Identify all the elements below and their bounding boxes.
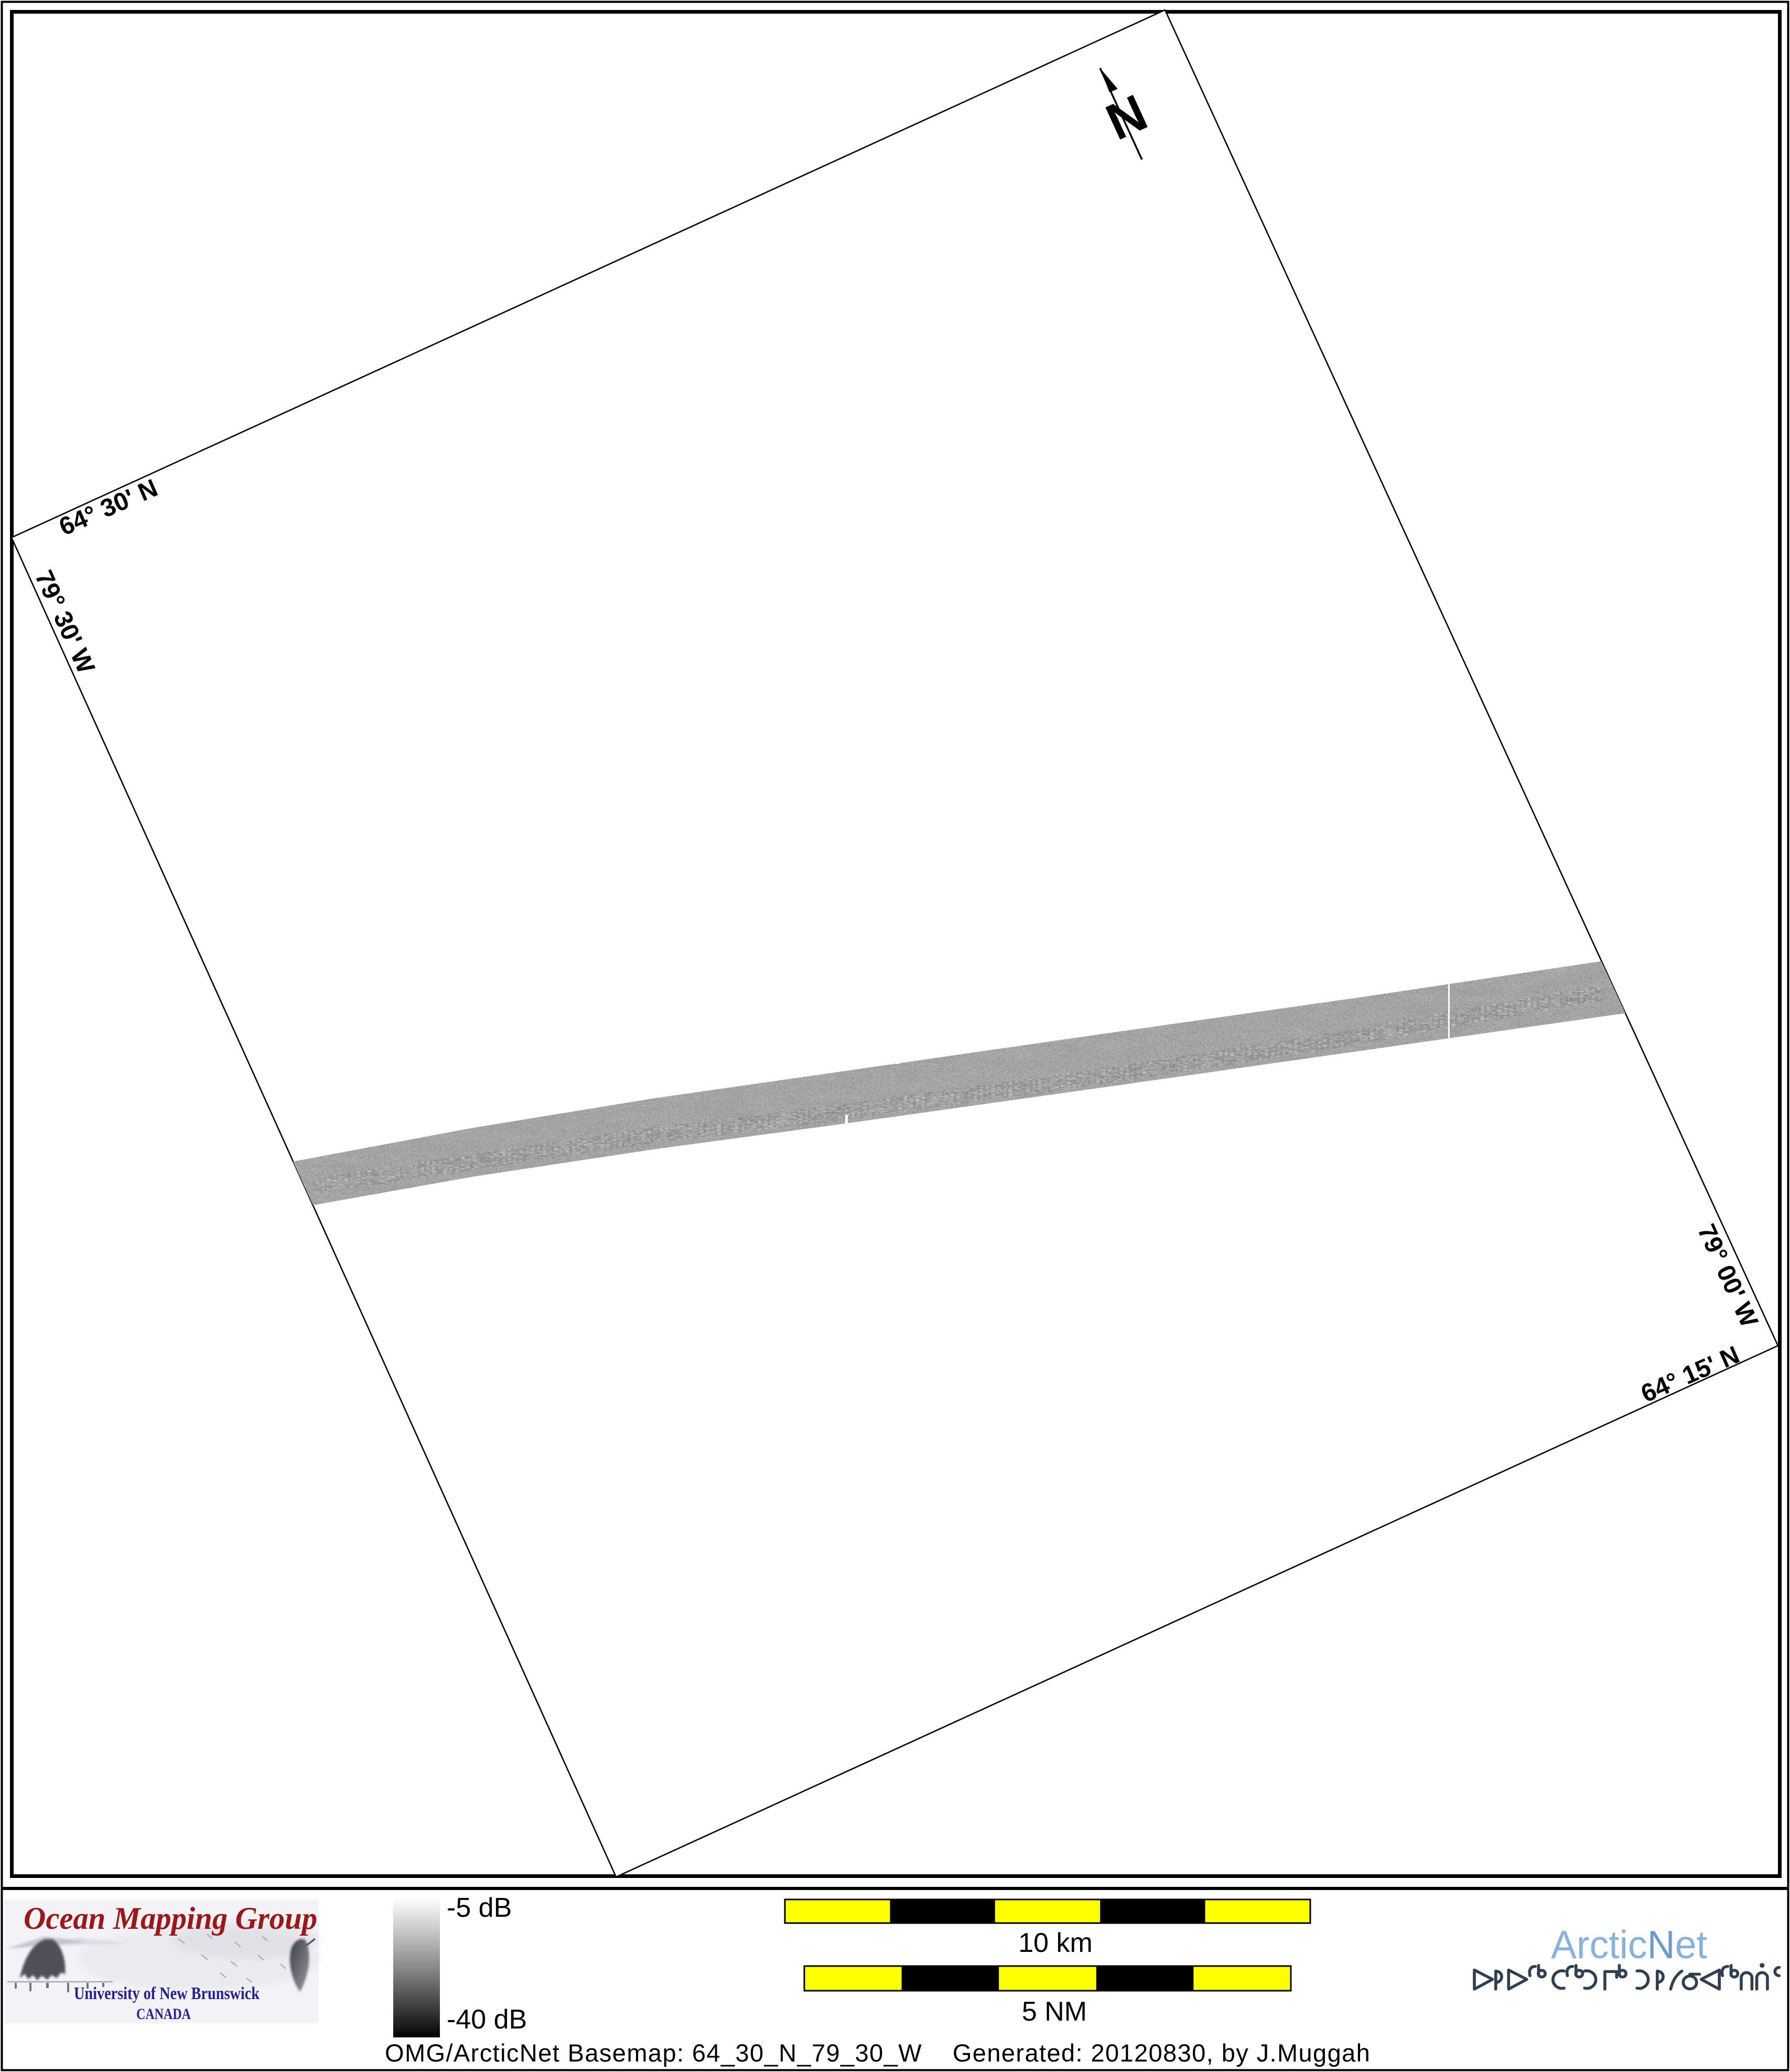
svg-text:Ocean Mapping Group: Ocean Mapping Group	[24, 1901, 317, 1936]
svg-text:5 NM: 5 NM	[1022, 1996, 1087, 2027]
svg-text:-40 dB: -40 dB	[447, 2004, 527, 2035]
svg-text:10 km: 10 km	[1018, 1928, 1093, 1958]
svg-text:ArcticNet: ArcticNet	[1551, 1923, 1707, 1967]
svg-text:-5 dB: -5 dB	[447, 1893, 512, 1923]
svg-text:University of New Brunswick: University of New Brunswick	[74, 1984, 260, 2003]
svg-text:CANADA: CANADA	[136, 2005, 191, 2023]
svg-text:OMG/ArcticNet Basemap: 64_30_N: OMG/ArcticNet Basemap: 64_30_N_79_30_W G…	[385, 2039, 1371, 2067]
